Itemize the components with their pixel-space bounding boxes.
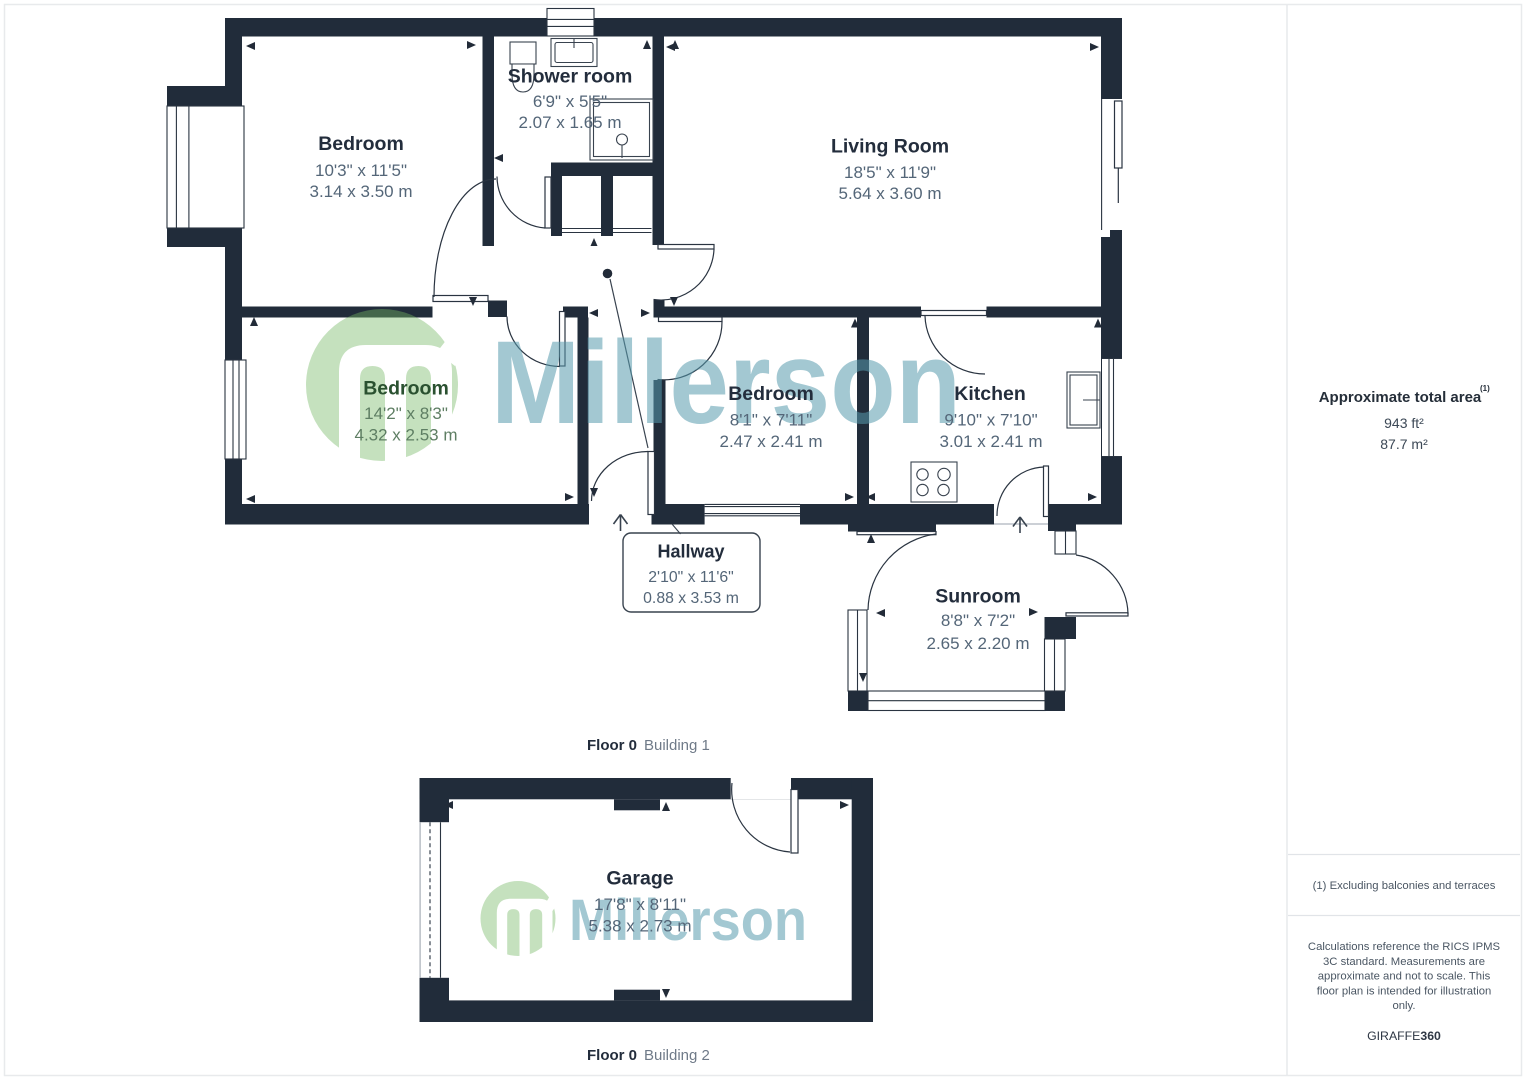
svg-text:Living Room: Living Room	[831, 136, 949, 158]
svg-text:5.64 x 3.60 m: 5.64 x 3.60 m	[838, 184, 941, 203]
svg-text:9'10" x 7'10": 9'10" x 7'10"	[944, 411, 1037, 430]
svg-text:2.65 x 2.20 m: 2.65 x 2.20 m	[926, 634, 1029, 653]
svg-text:2'10" x 11'6": 2'10" x 11'6"	[648, 569, 733, 586]
svg-text:87.7 m²: 87.7 m²	[1380, 436, 1428, 452]
svg-text:approximate and not to scale.: approximate and not to scale. This	[1318, 971, 1491, 983]
svg-text:Garage: Garage	[606, 868, 673, 890]
svg-text:18'5" x 11'9": 18'5" x 11'9"	[844, 163, 936, 182]
svg-text:Approximate total area: Approximate total area	[1319, 389, 1482, 406]
svg-text:Calculations reference the RIC: Calculations reference the RICS IPMS	[1308, 941, 1501, 953]
svg-text:6'9" x 5'5": 6'9" x 5'5"	[533, 92, 607, 111]
svg-text:2.07 x 1.65 m: 2.07 x 1.65 m	[518, 113, 621, 132]
svg-text:3.14 x 3.50 m: 3.14 x 3.50 m	[309, 182, 412, 201]
svg-text:Floor 0: Floor 0	[587, 737, 637, 754]
svg-text:(1) Excluding balconies and te: (1) Excluding balconies and terraces	[1313, 880, 1496, 892]
svg-text:Building 1: Building 1	[644, 737, 710, 754]
svg-text:Hallway: Hallway	[657, 542, 724, 562]
svg-text:3.01 x 2.41 m: 3.01 x 2.41 m	[939, 432, 1042, 451]
svg-text:only.: only.	[1392, 1000, 1415, 1012]
svg-text:Bedroom: Bedroom	[318, 133, 404, 155]
svg-text:(1): (1)	[1480, 384, 1490, 393]
svg-text:3C standard. Measurements are: 3C standard. Measurements are	[1323, 956, 1485, 968]
svg-text:2.47 x 2.41 m: 2.47 x 2.41 m	[719, 432, 822, 451]
svg-text:GIRAFFE360: GIRAFFE360	[1367, 1029, 1441, 1043]
svg-text:8'1" x 7'11": 8'1" x 7'11"	[730, 411, 813, 430]
svg-text:Kitchen: Kitchen	[954, 383, 1026, 405]
svg-text:17'8" x 8'11": 17'8" x 8'11"	[594, 895, 686, 914]
svg-text:4.32 x 2.53 m: 4.32 x 2.53 m	[354, 426, 457, 445]
svg-text:Bedroom: Bedroom	[363, 378, 449, 400]
svg-text:8'8" x 7'2": 8'8" x 7'2"	[941, 611, 1015, 630]
svg-text:14'2" x 8'3": 14'2" x 8'3"	[364, 404, 448, 423]
svg-text:Sunroom: Sunroom	[935, 586, 1021, 608]
svg-text:Bedroom: Bedroom	[728, 383, 814, 405]
svg-text:5.38 x 2.73 m: 5.38 x 2.73 m	[588, 917, 691, 936]
svg-text:Millerson: Millerson	[491, 317, 961, 449]
svg-text:floor plan is intended for ill: floor plan is intended for illustration	[1317, 985, 1492, 997]
svg-text:10'3" x 11'5": 10'3" x 11'5"	[315, 161, 407, 180]
svg-text:Floor 0: Floor 0	[587, 1047, 637, 1064]
svg-text:Shower room: Shower room	[508, 66, 633, 88]
svg-text:0.88 x 3.53 m: 0.88 x 3.53 m	[643, 590, 739, 607]
svg-text:943 ft²: 943 ft²	[1384, 415, 1424, 431]
svg-text:Building 2: Building 2	[644, 1047, 710, 1064]
